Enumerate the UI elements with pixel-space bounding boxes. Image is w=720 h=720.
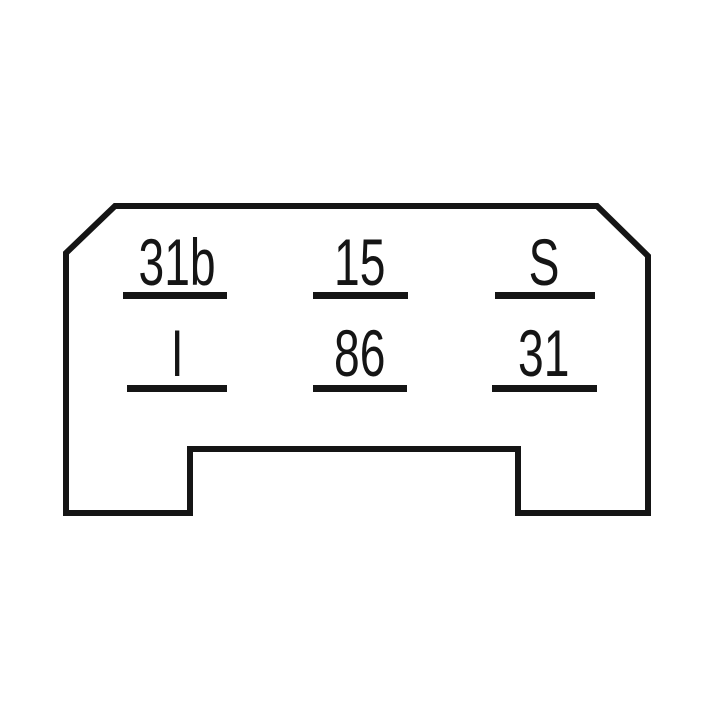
pin-terminal-line-31 bbox=[492, 385, 597, 392]
pin-cell-31b: 31b bbox=[92, 229, 262, 295]
pin-terminal-line-I bbox=[127, 385, 227, 392]
pin-label-86: 86 bbox=[334, 320, 385, 386]
relay-pinout-diagram: 31b 15 S I 86 31 bbox=[0, 0, 720, 720]
pin-label-31b: 31b bbox=[138, 229, 215, 295]
pin-cell-S: S bbox=[459, 229, 629, 295]
pin-cell-15: 15 bbox=[275, 229, 445, 295]
pin-terminal-line-15 bbox=[313, 292, 408, 299]
pin-cell-86: 86 bbox=[275, 320, 445, 386]
pin-terminal-line-86 bbox=[313, 385, 407, 392]
pin-label-S: S bbox=[529, 229, 560, 295]
pin-label-31: 31 bbox=[518, 320, 569, 386]
pin-cell-31: 31 bbox=[459, 320, 629, 386]
pin-cell-I: I bbox=[92, 320, 262, 386]
pin-terminal-line-S bbox=[495, 292, 595, 299]
pin-label-15: 15 bbox=[334, 229, 385, 295]
pin-terminal-line-31b bbox=[123, 292, 227, 299]
pin-label-I: I bbox=[171, 320, 184, 386]
